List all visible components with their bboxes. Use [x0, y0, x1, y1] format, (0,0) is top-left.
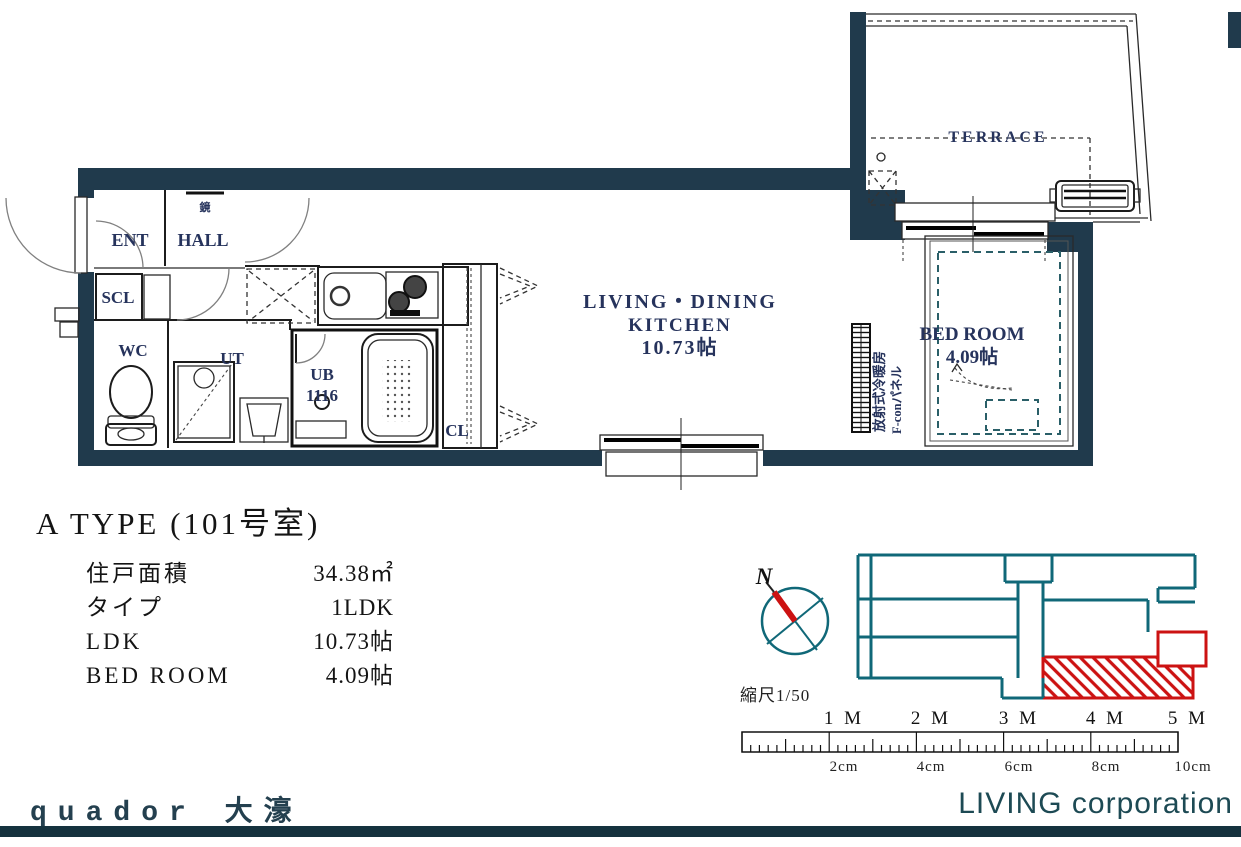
ruler-meter-5: 5 M	[1168, 708, 1208, 729]
compass: N	[755, 564, 828, 654]
room-label-ldk-size: 10.73帖	[642, 336, 719, 359]
info-row-area: 住戸面積 34.38㎡	[86, 557, 394, 591]
info-value: 4.09帖	[266, 659, 394, 693]
ruler-cm-1: 2cm	[830, 759, 859, 775]
info-value: 10.73帖	[266, 625, 394, 659]
site-map	[858, 555, 1206, 698]
ruler-meter-1: 1 M	[824, 708, 864, 729]
ruler-cm-3: 6cm	[1005, 759, 1034, 775]
unit-info-table: 住戸面積 34.38㎡ タイプ 1LDK LDK 10.73帖 BED ROOM…	[86, 557, 394, 693]
entrance-door	[6, 197, 87, 273]
room-label-ldk-1: LIVING・DINING	[583, 291, 777, 313]
ruler-cm-2: 4cm	[917, 759, 946, 775]
info-label: 住戸面積	[86, 557, 266, 591]
ruler-meter-4: 4 M	[1086, 708, 1126, 729]
bath-counter	[296, 421, 346, 438]
unit-info: A TYPE (101号室) 住戸面積 34.38㎡ タイプ 1LDK LDK …	[36, 498, 394, 693]
info-label: LDK	[86, 625, 266, 659]
mirror-label: 鏡	[200, 200, 211, 214]
room-label-ent: ENT	[111, 230, 148, 250]
scale-ruler: 1 M 2 M 3 M 4 M 5 M 2cm 4cm 6cm 8cm 10cm	[742, 708, 1212, 775]
ruler-cm-5: 10cm	[1174, 759, 1211, 775]
vanity-fixture	[240, 398, 288, 443]
room-label-ut: UT	[220, 349, 244, 368]
ldk-window	[600, 418, 763, 490]
info-label: タイプ	[86, 591, 266, 625]
terrace-drain	[877, 153, 885, 161]
washer-pan-fixture	[174, 362, 234, 442]
project-name: quador 大濠	[30, 789, 303, 829]
info-row-type: タイプ 1LDK	[86, 591, 394, 625]
room-label-bedroom: BED ROOM	[919, 324, 1024, 345]
bathtub-fixture	[362, 334, 433, 442]
unit-terrace-highlight	[1158, 632, 1206, 666]
room-label-bedroom-size: 4.09帖	[946, 345, 998, 368]
ruler-meter-2: 2 M	[911, 708, 951, 729]
meter-box	[55, 308, 79, 337]
stove-fixture	[386, 272, 438, 318]
unit-title: A TYPE (101号室)	[36, 498, 394, 543]
folding-door-top	[500, 268, 538, 304]
scale-caption: 縮尺1/50	[740, 686, 810, 705]
info-label: BED ROOM	[86, 659, 266, 693]
info-row-bedroom: BED ROOM 4.09帖	[86, 659, 394, 693]
folding-door-bottom	[500, 406, 538, 442]
room-label-scl: SCL	[101, 288, 134, 307]
bed-pillow-outline	[986, 400, 1038, 430]
kitchen-sink-fixture	[324, 273, 386, 319]
room-label-ub-size: 1116	[306, 386, 338, 405]
heater-label-2: F-conパネル	[890, 365, 904, 434]
ruler-meter-3: 3 M	[999, 708, 1039, 729]
north-needle	[774, 592, 795, 621]
room-label-cl: CL	[445, 421, 469, 440]
info-value: 1LDK	[266, 591, 394, 625]
info-value: 34.38㎡	[266, 557, 394, 591]
toilet-fixture	[106, 366, 156, 445]
ac-outdoor-unit	[1050, 181, 1140, 211]
room-label-terrace: TERRACE	[948, 129, 1047, 146]
kitchen-counter	[247, 267, 468, 325]
terrace: TERRACE	[866, 14, 1151, 222]
room-label-hall: HALL	[177, 230, 228, 250]
room-label-wc: WC	[118, 341, 147, 360]
heater-label-1: 放射式冷暖房	[871, 351, 887, 433]
room-label-ub: UB	[310, 365, 334, 384]
radiant-heater-panel	[852, 324, 870, 432]
hall-ldk-door-arc	[245, 198, 309, 262]
north-label: N	[755, 564, 774, 589]
company-logo: LIVING corporation	[958, 787, 1233, 821]
info-row-ldk: LDK 10.73帖	[86, 625, 394, 659]
ruler-cm-4: 8cm	[1092, 759, 1121, 775]
hall-ut-door-arc	[177, 268, 229, 320]
floor-plan-drawing: TERRACE	[0, 0, 1241, 847]
floor-plan-page: TERRACE	[0, 0, 1241, 847]
room-label-ldk-2: KITCHEN	[628, 315, 732, 336]
footer-divider	[0, 826, 1241, 837]
